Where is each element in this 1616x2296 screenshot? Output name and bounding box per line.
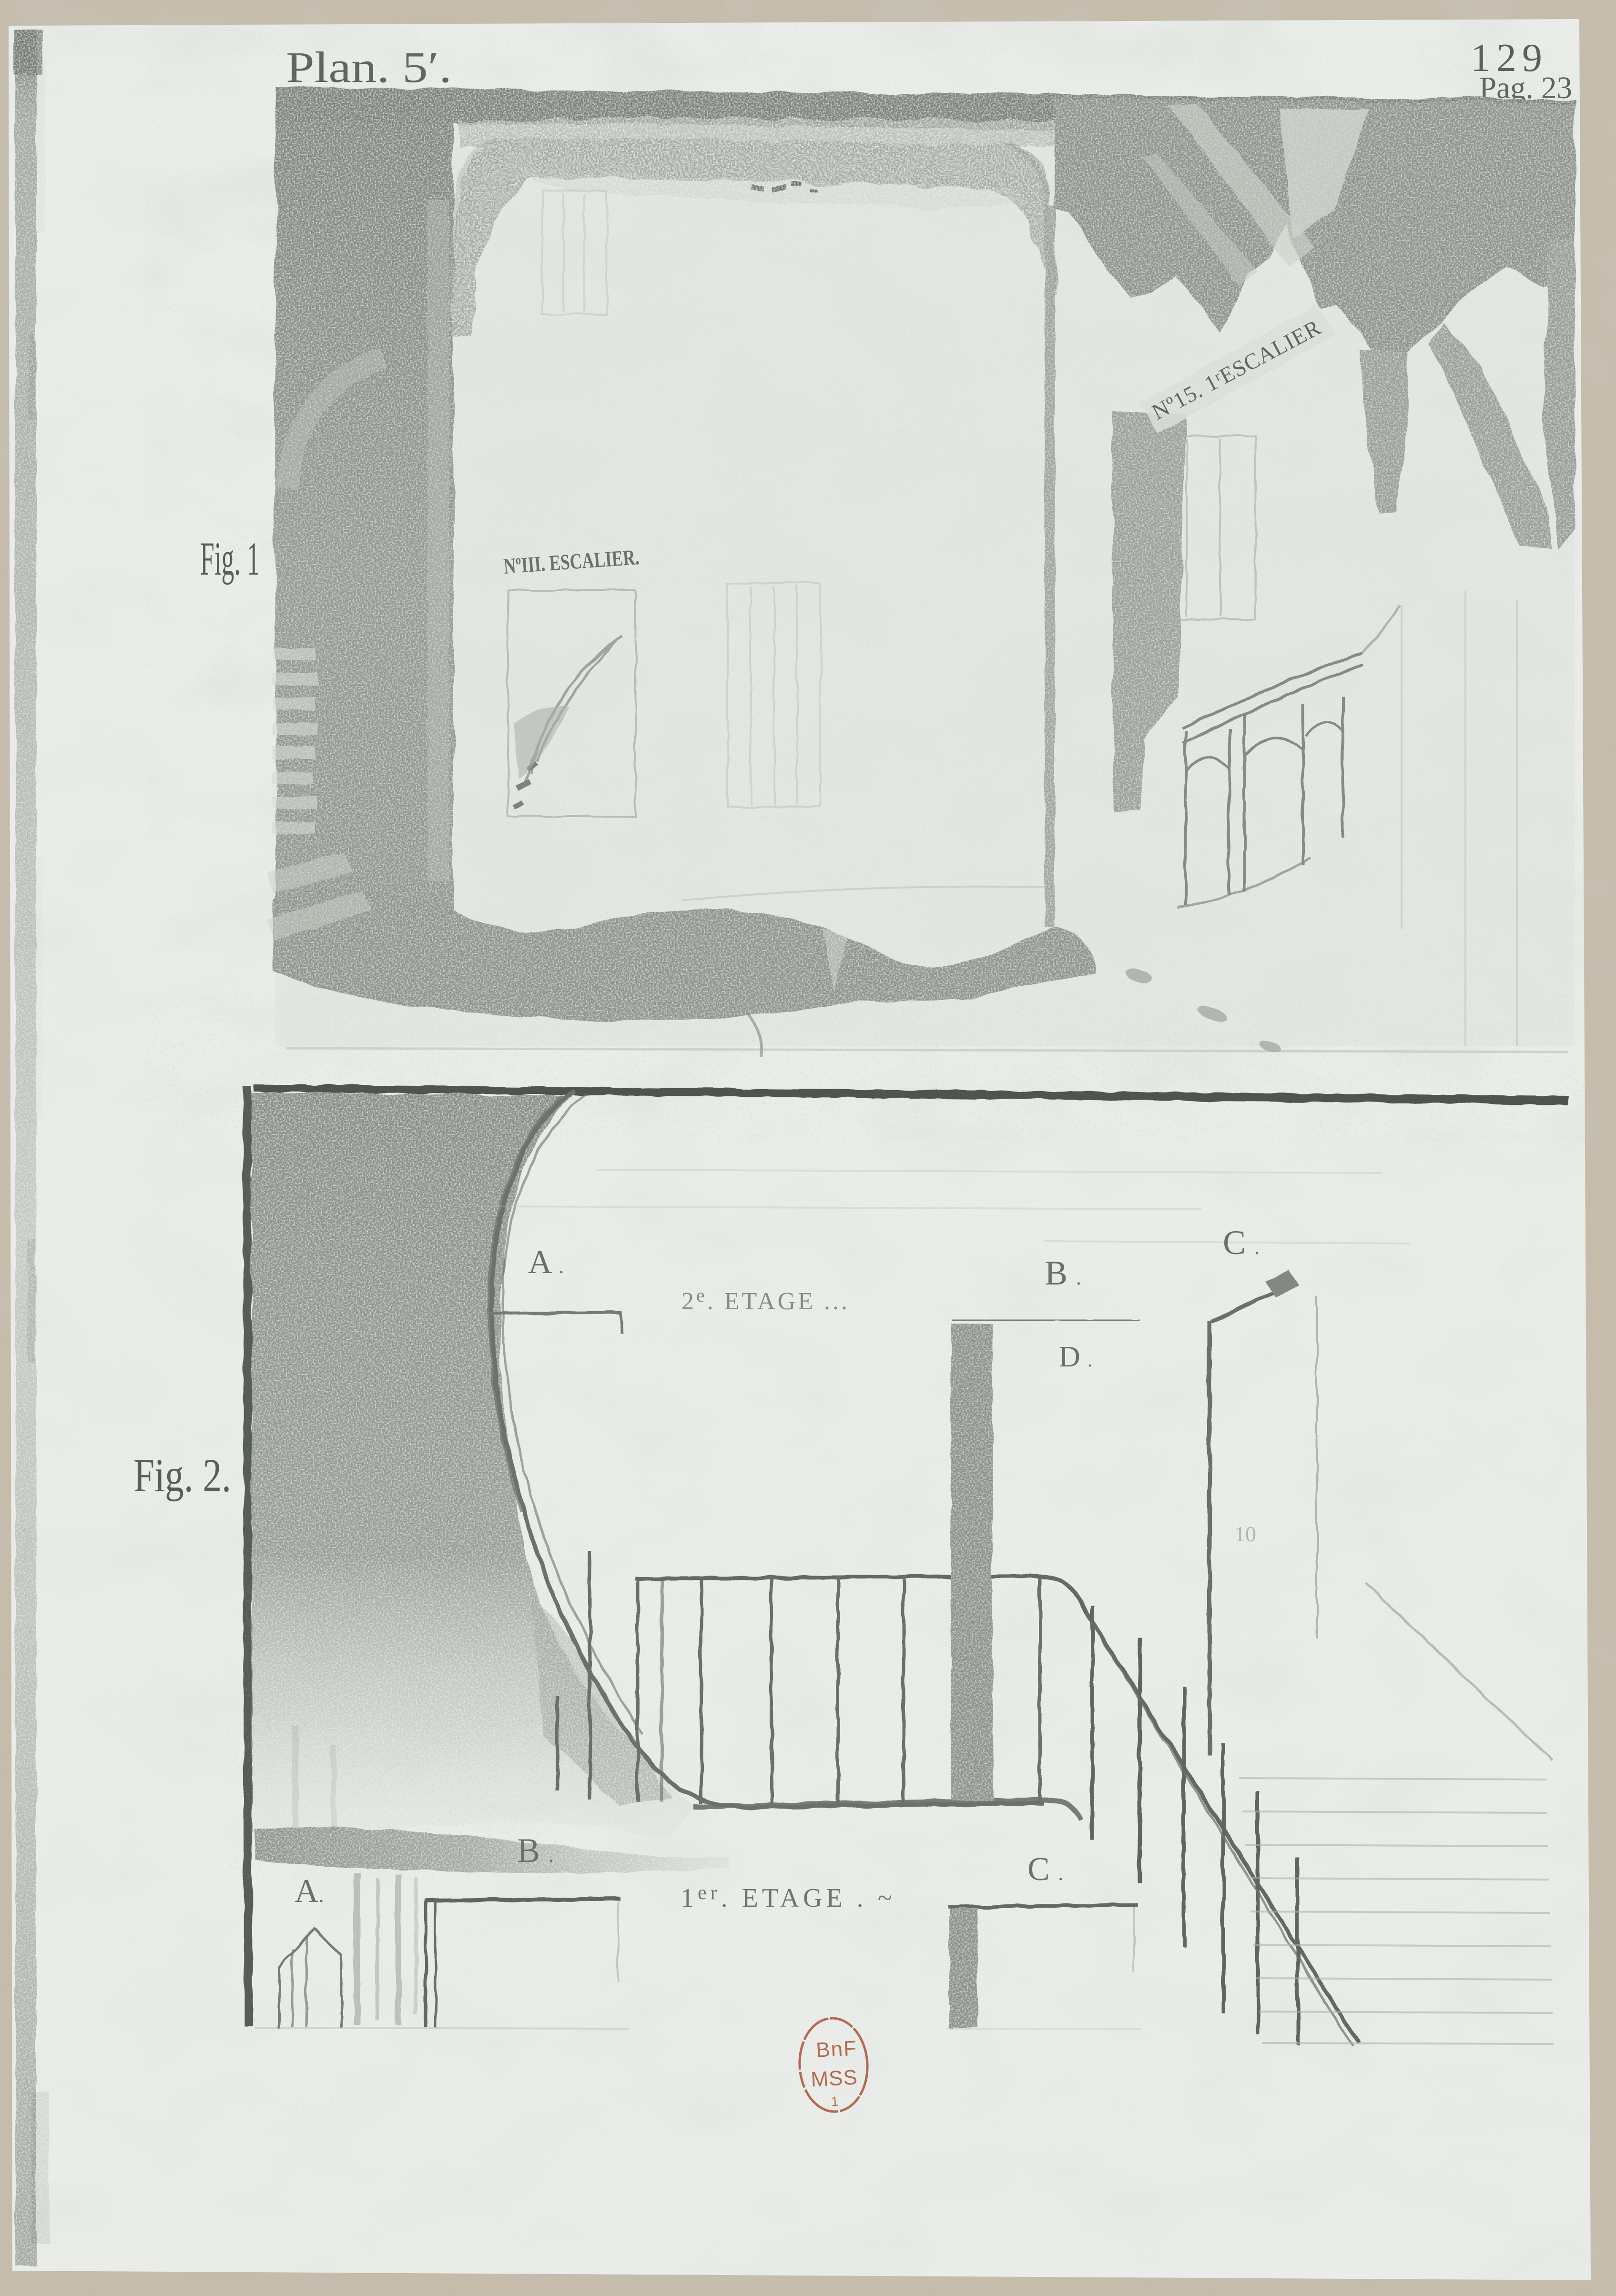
- svg-text:C .: C .: [1027, 1851, 1063, 1888]
- svg-text:1: 1: [831, 2094, 839, 2109]
- svg-text:Fig. 2.: Fig. 2.: [133, 1449, 231, 1502]
- svg-text:Plan. 5′.: Plan. 5′.: [286, 43, 452, 91]
- svg-text:10: 10: [1234, 1522, 1256, 1546]
- svg-text:B .: B .: [517, 1831, 554, 1870]
- svg-text:A .: A .: [528, 1244, 564, 1281]
- svg-text:D .: D .: [1059, 1341, 1092, 1373]
- svg-text:BnF: BnF: [815, 2036, 858, 2062]
- svg-text:B .: B .: [1045, 1254, 1081, 1292]
- svg-text:2e. ETAGE ...: 2e. ETAGE ...: [681, 1285, 850, 1315]
- svg-text:MSS: MSS: [810, 2065, 858, 2091]
- svg-text:C .: C .: [1223, 1224, 1260, 1262]
- svg-text:Fig. 1: Fig. 1: [200, 532, 260, 585]
